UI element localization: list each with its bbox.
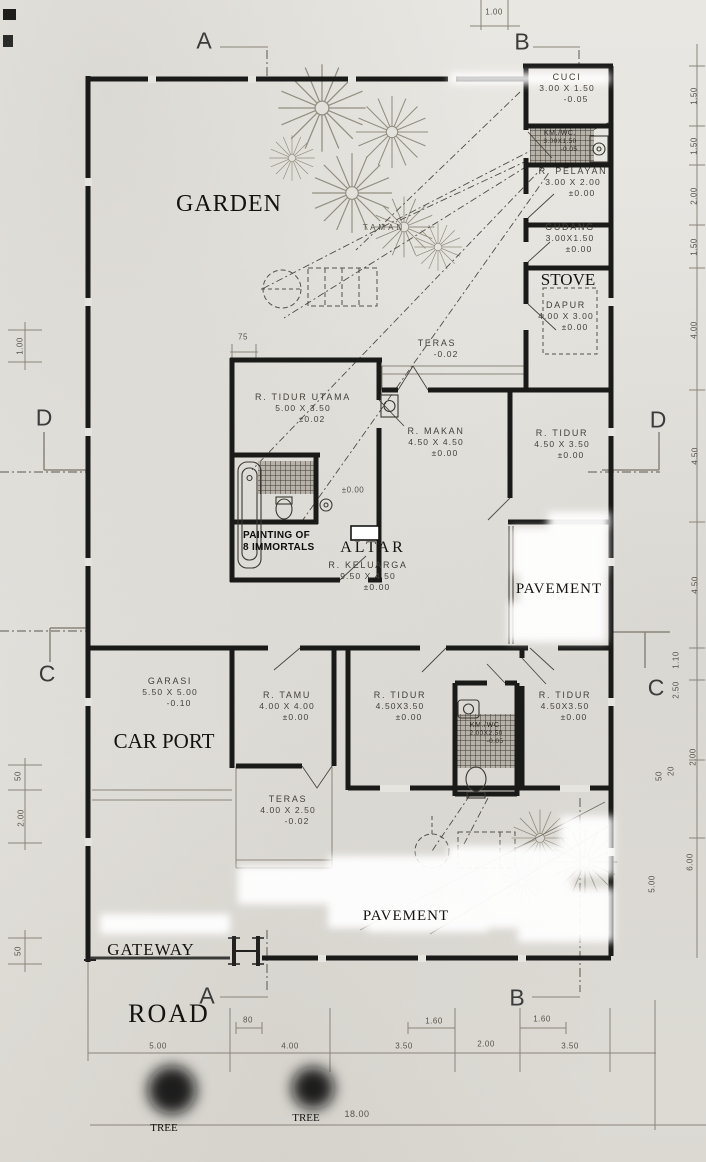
dim-right-2: 2.00 [690,187,699,205]
room-label-makan: R. MAKAN 4.50 X 4.50 ±0.00 [407,426,464,459]
room-label-tamu: R. TAMU 4.00 X 4.00 ±0.00 [259,690,315,723]
painting-of-8-immortals-label: PAINTING OF 8 IMMORTALS [243,530,314,554]
room-label-tidur-bl: R. TIDUR 4.50X3.50 ±0.00 [374,690,426,723]
dim-right-5: 4.50 [691,447,700,465]
dim-bottom-4: 1.60 [425,1017,443,1026]
dim-top-1: 75 [238,333,248,342]
drain-icon [320,499,332,511]
dim-right-11: 20 [667,766,676,776]
room-label-keluarga: R. KELUARGA 9.50 X 4.50 ±0.00 [328,560,407,593]
dim-left-3: 50 [14,946,23,956]
altar-label: ALTAR [340,539,406,557]
room-label-pelayan: R. PELAYAN 3.00 X 2.00 ±0.00 [539,166,608,199]
dim-left-0: 1.00 [16,337,25,355]
street-tree-blobs [148,1066,334,1114]
room-label-tidur-utama: R. TIDUR UTAMA 5.00 X 3.50 ±0.02 [255,392,351,425]
taman-label: TAMAN [363,223,405,232]
room-label-kmwc-service: KM./WC. 3.00X1.50 -0.05 [543,130,578,154]
stove-label: STOVE [541,270,595,290]
tree-label-1: TREE [150,1122,178,1134]
grid-letter-d-right: D [650,407,667,434]
room-label-tidur-br: R. TIDUR 4.50X3.50 ±0.00 [539,690,591,723]
room-label-teras-upper: TERAS -0.02 [416,338,459,360]
toilet-icon [276,499,292,519]
dim-left-1: 50 [14,771,23,781]
grid-letter-d-left: D [36,405,53,432]
room-label-garasi: GARASI 5.50 X 5.00 -0.10 [142,676,198,709]
room-label-teras-bottom: TERAS 4.00 X 2.50 -0.02 [260,794,316,827]
garden-label: GARDEN [176,191,282,218]
total-width-dim: 18.00 [344,1109,369,1119]
room-label-dapur: DAPUR 4.00 X 3.00 ±0.00 [538,300,594,333]
dim-top-0: 1.00 [485,8,503,17]
altar-symbol [351,526,379,540]
scan-artifact-marks [3,9,16,47]
gateway-label: GATEWAY [107,940,195,960]
dim-bottom-3: 3.50 [395,1042,413,1051]
dim-bottom-5: 2.00 [477,1040,495,1049]
tree-label-2: TREE [292,1112,320,1124]
room-label-cuci: CUCI 3.00 X 1.50 -0.05 [539,72,595,105]
dim-right-6: 4.50 [691,576,700,594]
dim-bottom-6: 1.60 [533,1015,551,1024]
grid-letter-a-top: A [196,28,211,55]
dim-right-12: 6.00 [686,853,695,871]
dim-bottom-2: 4.00 [281,1042,299,1051]
road-label: ROAD [128,999,210,1029]
grid-letter-c-right: C [648,675,665,702]
dim-right-10: 50 [655,771,664,781]
grid-letter-c-left: C [39,661,56,688]
dim-right-13: 5.00 [648,875,657,893]
room-label-kmwc-bottom: KM./WC. 2.00X2.50 -0.05 [469,722,504,746]
floor-plan-canvas: A B A B D D C C CUCI 3.00 X 1.50 -0.05 K… [0,0,706,1162]
pavement-bottom-label: PAVEMENT [363,908,449,925]
grid-letter-b-bottom: B [509,985,524,1012]
wall-joints [85,76,615,962]
room-label-gudang: GUDANG 3.00X1.50 ±0.00 [545,222,595,255]
dim-right-3: 1.50 [690,238,699,256]
car-port-label: CAR PORT [114,729,215,754]
dim-bottom-7: 3.50 [561,1042,579,1051]
dim-bottom-0: 5.00 [149,1042,167,1051]
dim-bottom-1: 80 [243,1016,253,1025]
dim-right-4: 4.00 [690,321,699,339]
dim-right-0: 1.50 [690,87,699,105]
hall-level-label: ±0.00 [342,486,364,495]
grid-letter-b-top: B [514,29,529,56]
dim-right-8: 2.50 [672,681,681,699]
dim-right-1: 1.50 [690,137,699,155]
dim-right-9: 2.00 [689,748,698,766]
dim-right-7: 1.10 [672,651,681,669]
pavement-right-label: PAVEMENT [516,581,602,598]
dim-left-2: 2.00 [17,809,26,827]
room-label-tidur-mid: R. TIDUR 4.50 X 3.50 ±0.00 [534,428,590,461]
